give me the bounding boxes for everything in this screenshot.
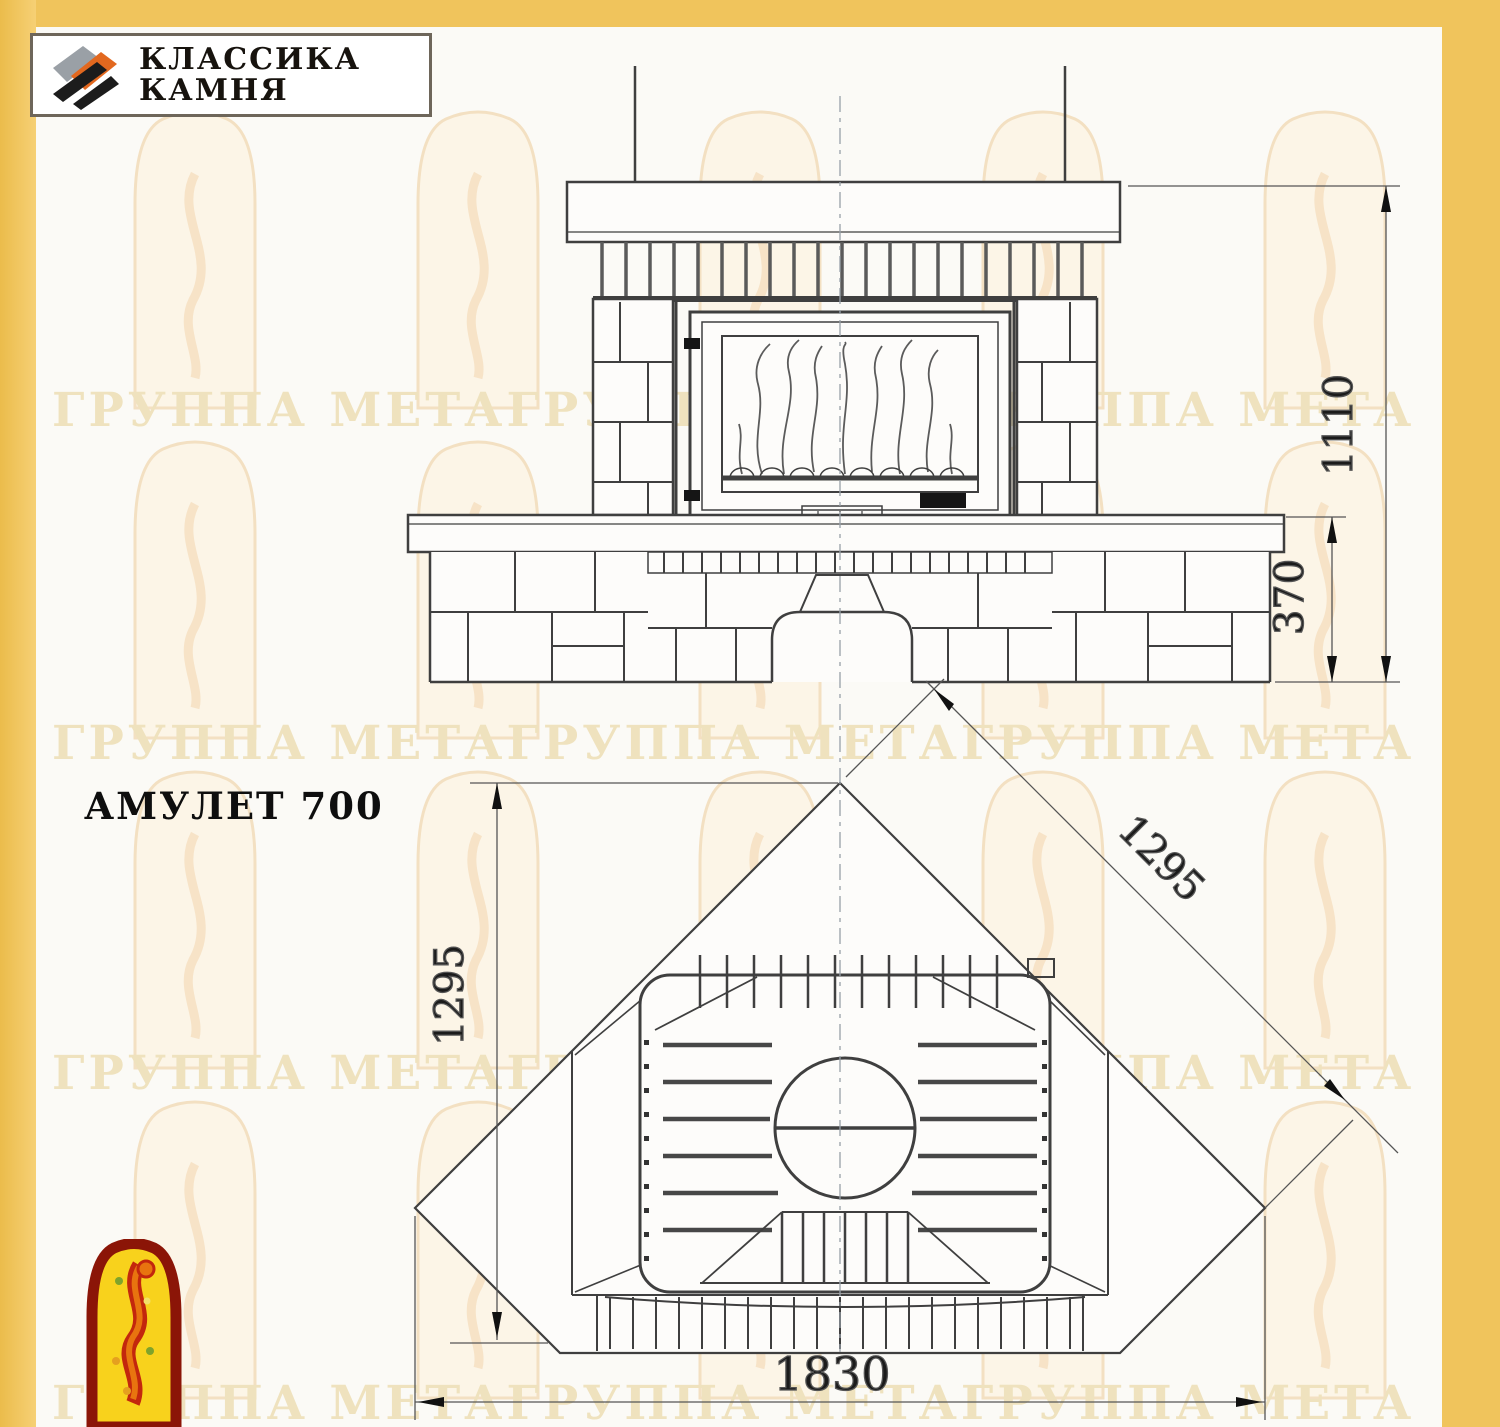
dim-label-1295-depth: 1295 [427, 944, 473, 1046]
firebox-door [684, 312, 1010, 520]
fireplace-technical-drawing: 1110 370 1295 [0, 0, 1500, 1427]
dim-label-1110: 1110 [1316, 374, 1362, 476]
page: ГРУППА МЕТАГРУППА МЕТАГРУППА МЕТА ГРУППА… [0, 0, 1500, 1427]
dim-label-370: 370 [1267, 559, 1313, 635]
brick-pillar-right [1017, 299, 1097, 515]
company-logo-box: КЛАССИКА КАМНЯ [30, 33, 432, 117]
mantel-shelf [567, 182, 1120, 242]
product-name: АМУЛЕТ 700 [84, 784, 384, 828]
logo-text-line1: КЛАССИКА [139, 44, 361, 75]
brick-pillar-left [593, 299, 673, 515]
front-view-drawing [408, 66, 1284, 682]
stone-slabs-icon [47, 40, 125, 110]
top-border [0, 0, 1500, 27]
stone-base [430, 552, 1270, 682]
dim-label-1830: 1830 [773, 1347, 890, 1401]
dim-label-1295-side: 1295 [1109, 807, 1214, 912]
firebox-insert-plan [640, 955, 1054, 1292]
left-border [0, 0, 36, 1427]
logo-text-line2: КАМНЯ [139, 75, 361, 106]
logo-text: КЛАССИКА КАМНЯ [139, 44, 361, 106]
slat-band [602, 242, 1082, 296]
door-hinge-top [684, 338, 700, 349]
door-hinge-bottom [684, 490, 700, 501]
door-handle [920, 493, 966, 508]
bench-slab [408, 515, 1284, 552]
right-border [1442, 0, 1500, 1427]
jester-arch-logo [83, 1239, 185, 1427]
